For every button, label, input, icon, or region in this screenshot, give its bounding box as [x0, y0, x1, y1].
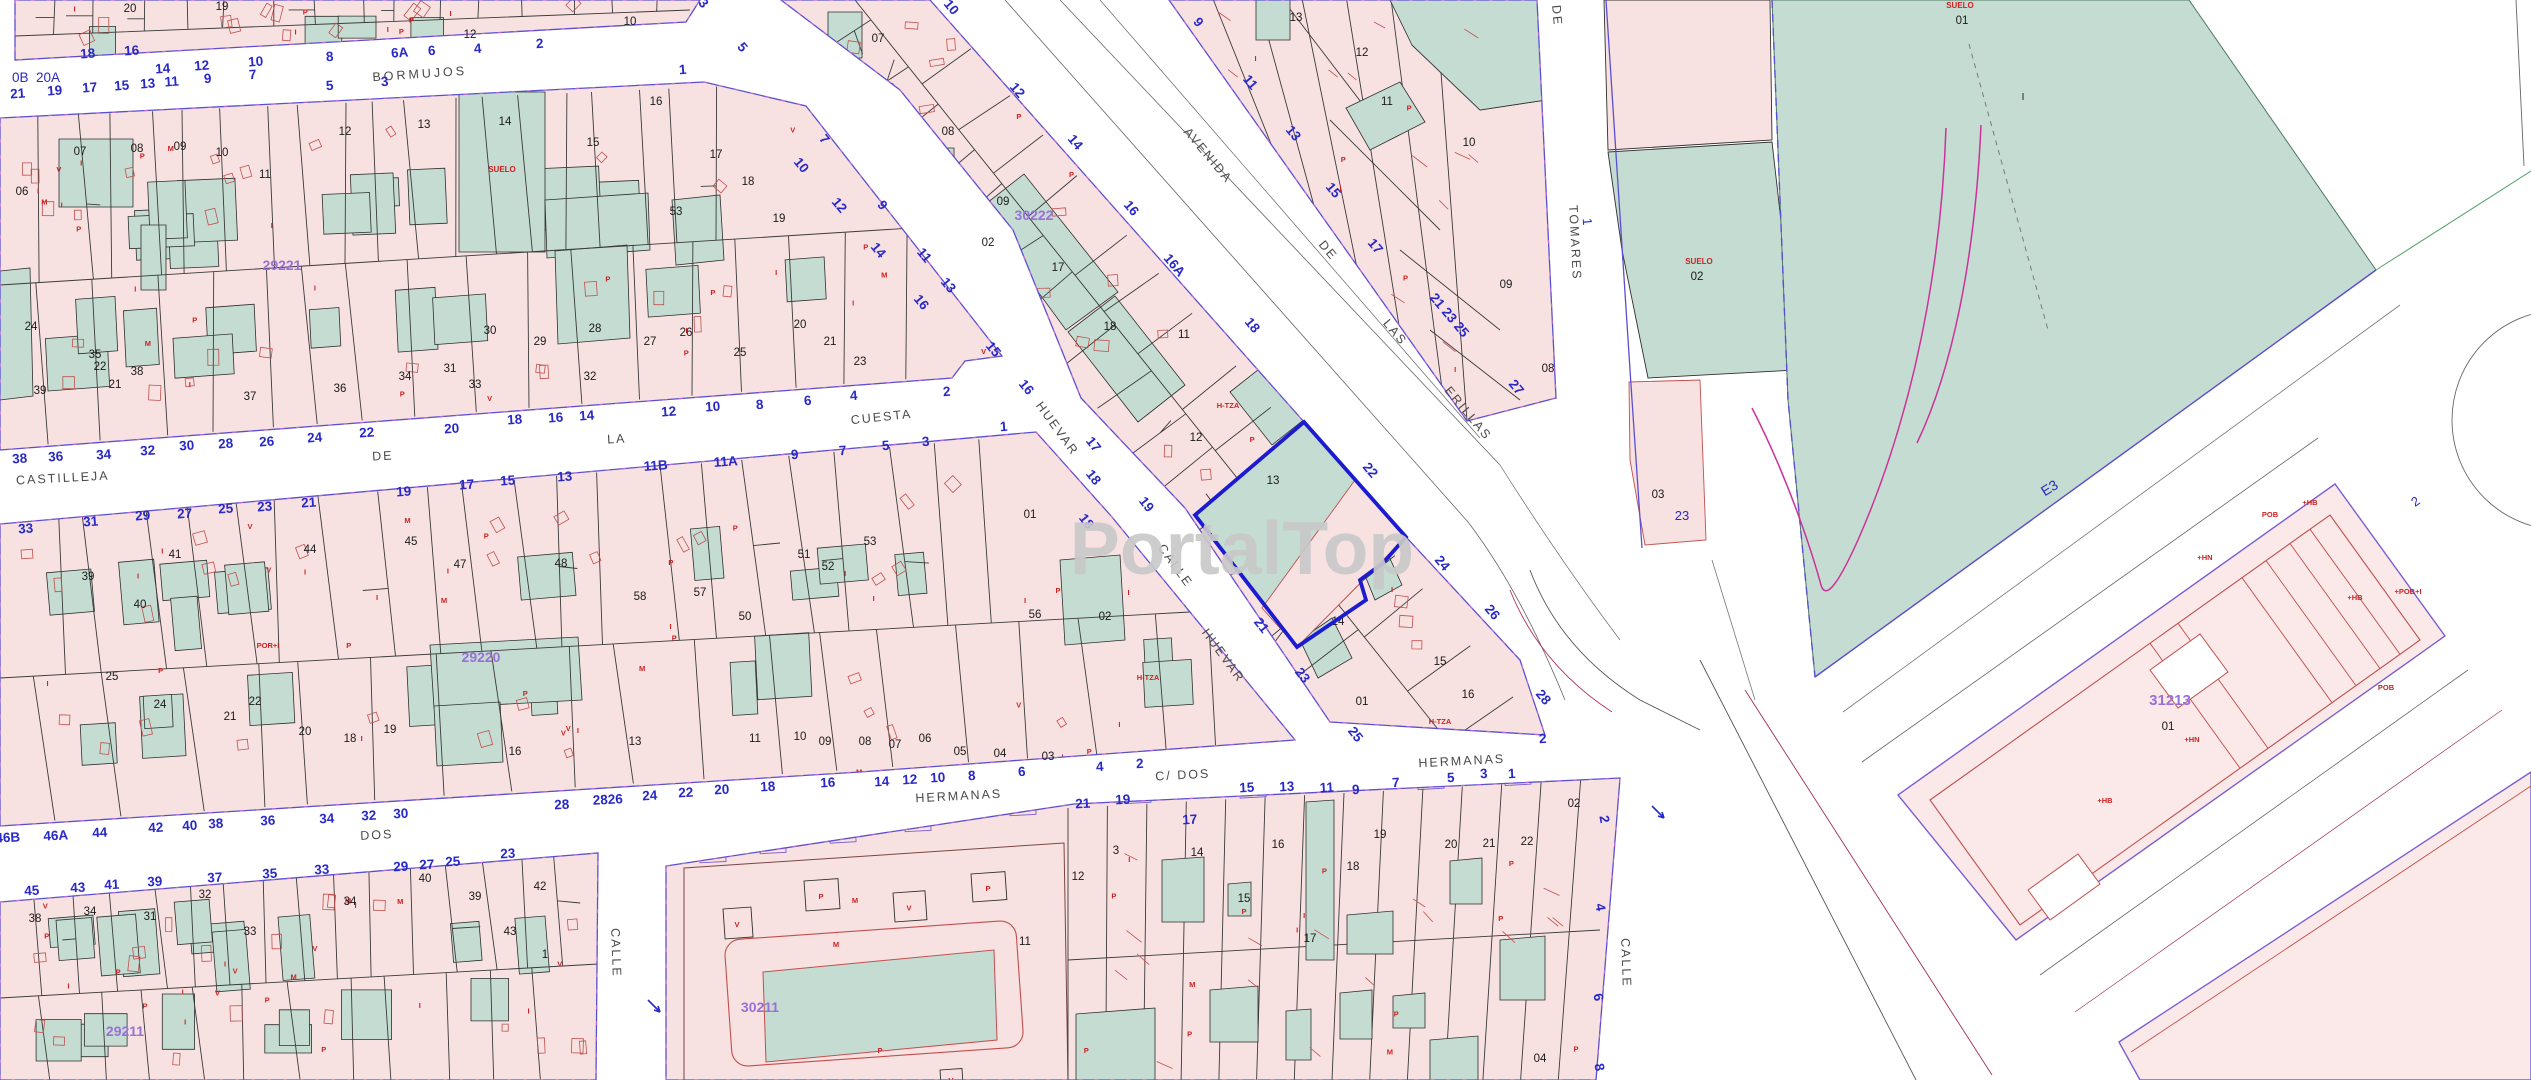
svg-text:P: P: [1394, 1010, 1399, 1019]
svg-text:09: 09: [1500, 279, 1513, 291]
svg-text:19: 19: [1374, 829, 1387, 841]
svg-text:P: P: [1016, 112, 1021, 121]
svg-text:2: 2: [942, 384, 951, 399]
svg-text:13: 13: [629, 736, 642, 748]
svg-text:09: 09: [174, 141, 187, 153]
svg-text:M: M: [145, 339, 151, 348]
svg-text:31: 31: [144, 911, 157, 923]
svg-text:P: P: [863, 242, 868, 251]
svg-text:26: 26: [680, 327, 693, 339]
svg-text:42: 42: [534, 881, 547, 893]
svg-text:V: V: [906, 904, 911, 913]
svg-text:V: V: [215, 989, 220, 998]
svg-text:20A: 20A: [36, 70, 60, 85]
svg-text:I: I: [844, 569, 846, 578]
svg-text:2826: 2826: [592, 791, 623, 808]
svg-text:H-TZA: H-TZA: [1429, 717, 1452, 726]
svg-text:P: P: [265, 996, 270, 1005]
svg-text:18: 18: [1347, 861, 1360, 873]
svg-text:13: 13: [1267, 475, 1280, 487]
svg-text:P: P: [668, 558, 673, 567]
svg-text:17: 17: [1052, 262, 1065, 274]
svg-text:08: 08: [942, 126, 955, 138]
svg-text:53: 53: [670, 206, 683, 218]
svg-text:11: 11: [1019, 936, 1031, 948]
svg-text:10: 10: [624, 16, 637, 28]
svg-text:I: I: [224, 960, 226, 969]
svg-text:22: 22: [359, 425, 375, 441]
svg-text:I: I: [61, 200, 63, 209]
svg-text:11: 11: [1178, 329, 1190, 341]
svg-text:PortalTop: PortalTop: [1070, 506, 1414, 590]
svg-text:01: 01: [1956, 15, 1969, 27]
svg-text:I: I: [80, 159, 82, 168]
svg-text:11B: 11B: [643, 457, 668, 474]
svg-text:40: 40: [182, 818, 198, 834]
svg-text:47: 47: [454, 559, 467, 571]
svg-text:22: 22: [1521, 836, 1534, 848]
svg-text:16: 16: [650, 96, 663, 108]
svg-text:14: 14: [874, 774, 890, 790]
svg-text:P: P: [321, 1045, 326, 1054]
svg-text:18: 18: [344, 733, 357, 745]
svg-text:41: 41: [104, 877, 120, 893]
svg-text:35: 35: [262, 866, 278, 882]
svg-text:12: 12: [1190, 432, 1203, 444]
svg-text:V: V: [266, 566, 271, 575]
svg-text:05: 05: [954, 746, 967, 758]
svg-text:17: 17: [459, 477, 475, 493]
svg-text:DE: DE: [1549, 4, 1565, 27]
svg-text:DE: DE: [372, 448, 394, 463]
svg-text:12: 12: [1356, 47, 1369, 59]
svg-text:09: 09: [997, 196, 1010, 208]
svg-text:4: 4: [1096, 759, 1105, 774]
svg-text:I: I: [137, 571, 139, 580]
svg-text:P: P: [1111, 892, 1116, 901]
svg-text:10: 10: [794, 731, 807, 743]
svg-text:18: 18: [507, 411, 524, 427]
svg-text:+HN: +HN: [2184, 735, 2199, 744]
svg-text:23: 23: [257, 498, 274, 514]
svg-text:29: 29: [135, 508, 151, 524]
svg-text:14: 14: [499, 116, 512, 128]
svg-text:50: 50: [739, 611, 752, 623]
svg-text:I: I: [1254, 54, 1256, 63]
svg-text:56: 56: [1029, 609, 1042, 621]
svg-text:01: 01: [1356, 696, 1369, 708]
svg-text:CALLE: CALLE: [1618, 938, 1634, 988]
svg-text:P: P: [76, 224, 81, 233]
svg-text:P: P: [733, 523, 738, 532]
svg-text:3: 3: [1480, 766, 1489, 781]
svg-text:I: I: [775, 268, 777, 277]
svg-text:23: 23: [854, 356, 867, 368]
svg-text:V: V: [566, 724, 571, 733]
svg-text:13: 13: [557, 468, 574, 484]
svg-text:30: 30: [484, 325, 497, 337]
svg-text:I: I: [271, 221, 273, 230]
svg-text:34: 34: [399, 371, 412, 383]
svg-text:I: I: [37, 187, 39, 196]
svg-text:57: 57: [694, 587, 707, 599]
svg-text:12: 12: [661, 404, 677, 420]
svg-text:P: P: [158, 666, 163, 675]
svg-text:2: 2: [1539, 731, 1547, 746]
svg-text:I: I: [852, 298, 854, 307]
svg-text:1: 1: [1508, 766, 1517, 781]
svg-text:42: 42: [148, 820, 164, 836]
svg-text:11: 11: [1381, 96, 1393, 108]
svg-text:P: P: [523, 689, 528, 698]
svg-text:7: 7: [248, 67, 257, 82]
svg-text:I: I: [528, 1007, 530, 1016]
svg-text:7: 7: [1392, 775, 1400, 790]
svg-text:M: M: [404, 516, 410, 525]
svg-text:29: 29: [534, 336, 547, 348]
svg-text:30211: 30211: [741, 999, 779, 1015]
svg-text:SUELO: SUELO: [1946, 1, 1974, 10]
svg-text:V: V: [43, 902, 48, 911]
svg-text:02: 02: [1099, 611, 1112, 623]
svg-text:58: 58: [634, 591, 647, 603]
svg-text:P: P: [346, 641, 351, 650]
svg-text:16: 16: [1462, 689, 1475, 701]
svg-text:V: V: [487, 394, 492, 403]
svg-text:I: I: [361, 734, 363, 743]
svg-text:02: 02: [1568, 798, 1581, 810]
svg-text:10: 10: [216, 147, 229, 159]
svg-text:22: 22: [94, 361, 107, 373]
svg-text:02: 02: [1691, 271, 1704, 283]
svg-text:14: 14: [579, 407, 596, 423]
svg-text:2: 2: [1136, 756, 1144, 771]
svg-text:6: 6: [1018, 764, 1027, 779]
svg-text:V: V: [56, 165, 61, 174]
svg-text:V: V: [790, 125, 795, 134]
svg-text:SUELO: SUELO: [1685, 257, 1713, 266]
svg-text:40: 40: [134, 599, 147, 611]
svg-text:29220: 29220: [462, 649, 501, 665]
svg-text:04: 04: [1534, 1053, 1547, 1065]
svg-text:52: 52: [822, 561, 835, 573]
svg-text:39: 39: [34, 385, 47, 397]
svg-text:04: 04: [994, 748, 1007, 760]
svg-text:23: 23: [500, 846, 516, 862]
svg-text:28: 28: [218, 435, 235, 451]
svg-text:07: 07: [872, 33, 885, 45]
svg-text:22: 22: [249, 696, 262, 708]
svg-text:I: I: [1303, 911, 1305, 920]
svg-text:14: 14: [1191, 847, 1204, 859]
svg-text:38: 38: [208, 816, 224, 832]
svg-text:P: P: [985, 884, 990, 893]
svg-text:29221: 29221: [263, 257, 302, 273]
svg-text:38: 38: [29, 913, 42, 925]
svg-text:P: P: [400, 389, 405, 398]
svg-text:I: I: [419, 1001, 421, 1010]
svg-text:24: 24: [154, 699, 167, 711]
svg-text:POB: POB: [2378, 683, 2395, 692]
svg-text:27: 27: [177, 506, 193, 522]
svg-text:02: 02: [982, 237, 995, 249]
svg-text:29: 29: [393, 859, 409, 875]
svg-text:16: 16: [124, 42, 141, 58]
svg-text:21: 21: [109, 379, 122, 391]
svg-text:45: 45: [24, 883, 40, 899]
svg-text:28: 28: [589, 323, 602, 335]
svg-text:41: 41: [169, 549, 182, 561]
svg-text:18: 18: [80, 45, 97, 61]
svg-text:20: 20: [444, 421, 460, 437]
svg-text:17: 17: [1304, 933, 1317, 945]
svg-text:P: P: [1341, 155, 1346, 164]
svg-text:P: P: [672, 633, 677, 642]
svg-text:I: I: [182, 987, 184, 996]
svg-text:27: 27: [644, 336, 657, 348]
svg-text:36: 36: [260, 813, 276, 829]
svg-text:I: I: [1296, 926, 1298, 935]
svg-text:M: M: [852, 896, 858, 905]
svg-text:P: P: [409, 16, 414, 25]
svg-text:35: 35: [89, 349, 102, 361]
svg-text:I: I: [314, 283, 316, 292]
svg-text:11: 11: [749, 733, 761, 745]
svg-text:P: P: [1069, 170, 1074, 179]
svg-text:16: 16: [820, 775, 836, 791]
svg-text:7: 7: [838, 443, 847, 458]
svg-text:09: 09: [819, 736, 832, 748]
svg-text:9: 9: [1352, 782, 1360, 797]
svg-text:SUELO: SUELO: [488, 165, 516, 174]
svg-text:19: 19: [384, 724, 397, 736]
svg-text:15: 15: [587, 137, 600, 149]
svg-text:13: 13: [1279, 779, 1295, 795]
svg-text:26: 26: [259, 433, 276, 449]
svg-text:13: 13: [140, 75, 157, 91]
svg-text:POB: POB: [2262, 510, 2279, 519]
svg-text:29211: 29211: [106, 1023, 144, 1039]
svg-text:20: 20: [794, 319, 807, 331]
svg-text:30: 30: [393, 806, 409, 822]
svg-text:I: I: [376, 593, 378, 602]
svg-text:I: I: [1024, 596, 1026, 605]
svg-text:34: 34: [344, 896, 357, 908]
svg-text:9: 9: [790, 447, 799, 462]
svg-text:I: I: [669, 622, 671, 631]
svg-text:P: P: [1407, 103, 1412, 112]
svg-text:P: P: [142, 1002, 147, 1011]
svg-text:03: 03: [1042, 751, 1055, 763]
svg-text:12: 12: [339, 126, 352, 138]
svg-text:9: 9: [203, 71, 212, 86]
svg-text:34: 34: [96, 446, 113, 462]
svg-text:P: P: [1403, 274, 1408, 283]
svg-text:38: 38: [131, 366, 144, 378]
svg-text:I: I: [447, 567, 449, 576]
svg-text:P: P: [1241, 907, 1246, 916]
svg-text:I: I: [294, 28, 296, 37]
svg-text:POR+I: POR+I: [257, 641, 280, 650]
svg-text:15: 15: [1239, 780, 1255, 796]
svg-text:I: I: [189, 380, 191, 389]
svg-text:I: I: [1128, 855, 1130, 864]
svg-text:15: 15: [114, 77, 131, 93]
svg-text:33: 33: [18, 520, 35, 536]
svg-text:DOS: DOS: [360, 827, 394, 843]
svg-text:17: 17: [1182, 812, 1198, 828]
svg-text:I: I: [73, 5, 75, 14]
svg-text:36: 36: [48, 448, 65, 464]
svg-text:P: P: [116, 967, 121, 976]
svg-text:M: M: [1189, 980, 1195, 989]
svg-text:V: V: [312, 944, 317, 953]
svg-text:I: I: [134, 285, 136, 294]
svg-text:5: 5: [1447, 770, 1456, 785]
svg-text:20: 20: [714, 782, 730, 798]
svg-text:39: 39: [469, 891, 482, 903]
svg-text:19: 19: [216, 1, 229, 13]
svg-text:V: V: [557, 959, 562, 968]
svg-text:I: I: [184, 1017, 186, 1026]
svg-text:06: 06: [919, 733, 932, 745]
svg-text:25: 25: [218, 500, 235, 516]
svg-text:43: 43: [504, 926, 517, 938]
svg-text:M: M: [441, 596, 447, 605]
svg-text:44: 44: [92, 825, 108, 841]
svg-text:32: 32: [199, 889, 212, 901]
svg-text:P: P: [1498, 914, 1503, 923]
svg-text:15: 15: [1434, 656, 1447, 668]
svg-text:P: P: [1187, 1030, 1192, 1039]
svg-text:22: 22: [678, 785, 694, 801]
svg-text:11A: 11A: [713, 453, 738, 470]
svg-text:21: 21: [824, 336, 837, 348]
svg-text:P: P: [1055, 586, 1060, 595]
svg-text:P: P: [1573, 1044, 1578, 1053]
svg-text:V: V: [734, 920, 739, 929]
svg-text:10: 10: [930, 770, 946, 786]
svg-text:33: 33: [469, 379, 482, 391]
svg-text:8: 8: [968, 768, 977, 783]
svg-text:+HB: +HB: [2302, 498, 2318, 507]
svg-text:21: 21: [224, 711, 237, 723]
svg-text:39: 39: [82, 571, 95, 583]
svg-text:11: 11: [259, 169, 271, 181]
svg-text:15: 15: [1238, 893, 1251, 905]
svg-text:27: 27: [419, 857, 435, 873]
svg-text:48: 48: [555, 558, 568, 570]
svg-text:06: 06: [16, 186, 29, 198]
svg-text:24: 24: [642, 788, 658, 804]
svg-text:I: I: [304, 568, 306, 577]
svg-text:13: 13: [1290, 12, 1303, 24]
svg-text:07: 07: [889, 739, 902, 751]
svg-text:M: M: [1387, 1047, 1393, 1056]
svg-text:19: 19: [396, 484, 412, 500]
svg-text:I: I: [47, 679, 49, 688]
svg-text:34: 34: [84, 906, 97, 918]
svg-text:01: 01: [1024, 509, 1037, 521]
svg-text:0B: 0B: [12, 70, 29, 85]
svg-text:25: 25: [106, 671, 119, 683]
svg-text:16: 16: [548, 409, 565, 425]
svg-text:07: 07: [74, 146, 87, 158]
svg-text:36: 36: [334, 383, 347, 395]
svg-text:45: 45: [405, 536, 418, 548]
svg-text:I: I: [67, 982, 69, 991]
svg-text:10: 10: [1463, 137, 1476, 149]
svg-text:I: I: [873, 594, 875, 603]
svg-text:V: V: [247, 522, 252, 531]
svg-text:C/ DOS: C/ DOS: [1155, 767, 1211, 784]
svg-text:11: 11: [1319, 780, 1335, 796]
svg-text:18: 18: [1104, 321, 1117, 333]
svg-text:38: 38: [12, 450, 29, 466]
svg-text:37: 37: [244, 391, 257, 403]
svg-text:P: P: [684, 349, 689, 358]
svg-text:P: P: [192, 316, 197, 325]
svg-text:I: I: [1118, 720, 1120, 729]
svg-text:34: 34: [319, 811, 335, 827]
svg-text:32: 32: [361, 808, 377, 824]
svg-text:V: V: [233, 967, 238, 976]
svg-text:P: P: [605, 275, 610, 284]
svg-text:37: 37: [207, 870, 223, 886]
svg-text:P: P: [1250, 435, 1255, 444]
svg-text:17: 17: [82, 80, 98, 96]
svg-text:25: 25: [445, 854, 461, 870]
svg-text:21: 21: [10, 85, 27, 101]
svg-text:16: 16: [1272, 839, 1285, 851]
svg-text:24: 24: [307, 429, 324, 445]
svg-text:15: 15: [500, 472, 517, 488]
svg-text:18: 18: [742, 176, 755, 188]
svg-text:21: 21: [1075, 796, 1091, 812]
svg-text:24: 24: [25, 321, 38, 333]
svg-text:M: M: [881, 270, 887, 279]
svg-text:30222: 30222: [1015, 207, 1054, 223]
svg-text:P: P: [484, 531, 489, 540]
svg-text:M: M: [833, 940, 839, 949]
svg-text:12: 12: [464, 29, 477, 41]
svg-text:20: 20: [299, 726, 312, 738]
svg-text:P: P: [44, 931, 49, 940]
svg-text:39: 39: [147, 874, 163, 890]
svg-text:M: M: [41, 198, 47, 207]
svg-text:1: 1: [542, 949, 548, 961]
svg-text:18: 18: [760, 779, 776, 795]
svg-text:31: 31: [83, 513, 100, 529]
svg-text:46B: 46B: [0, 829, 21, 845]
svg-text:21: 21: [1483, 838, 1496, 850]
svg-text:16: 16: [509, 746, 522, 758]
svg-text:I: I: [161, 546, 163, 555]
svg-text:51: 51: [798, 549, 811, 561]
svg-text:1: 1: [1580, 217, 1596, 226]
svg-text:H-TZA: H-TZA: [1217, 401, 1240, 410]
svg-text:P: P: [399, 27, 404, 36]
svg-text:I: I: [449, 9, 451, 18]
svg-text:M: M: [639, 664, 645, 673]
svg-text:10: 10: [705, 399, 721, 415]
svg-text:31213: 31213: [2149, 692, 2191, 709]
svg-text:I: I: [387, 25, 389, 34]
svg-text:44: 44: [304, 544, 317, 556]
svg-text:V: V: [1016, 700, 1021, 709]
svg-text:25: 25: [734, 347, 747, 359]
svg-text:17: 17: [710, 149, 723, 161]
